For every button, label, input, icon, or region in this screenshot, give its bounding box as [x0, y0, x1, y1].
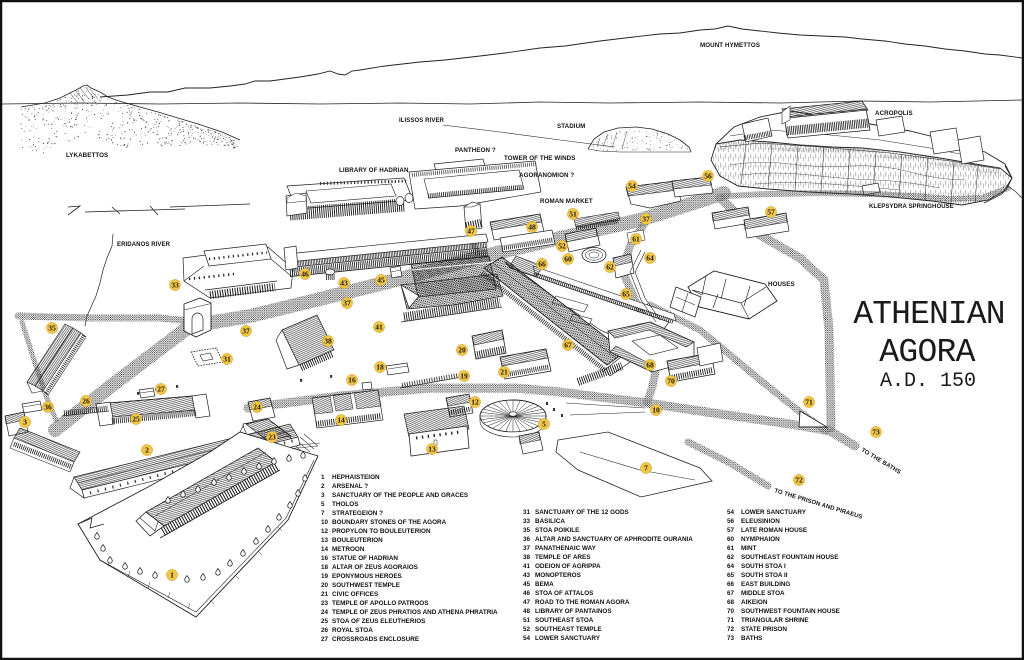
svg-text:68: 68 [646, 361, 654, 370]
svg-text:THOLOS: THOLOS [332, 501, 358, 508]
svg-text:A.D. 150: A.D. 150 [880, 370, 976, 393]
svg-text:46: 46 [523, 590, 531, 597]
svg-text:CIVIC OFFICES: CIVIC OFFICES [332, 591, 378, 598]
svg-text:EAST BUILDING: EAST BUILDING [741, 581, 790, 588]
svg-text:23: 23 [321, 600, 329, 607]
svg-text:31: 31 [223, 355, 231, 364]
svg-text:18: 18 [321, 564, 329, 571]
svg-text:26: 26 [82, 397, 90, 406]
svg-text:STATE PRISON: STATE PRISON [741, 626, 787, 633]
svg-text:13: 13 [428, 445, 436, 454]
svg-text:ODEION OF AGRIPPA: ODEION OF AGRIPPA [535, 563, 601, 570]
svg-text:BEMA: BEMA [535, 581, 554, 588]
svg-text:SOUTHWEST FOUNTAIN HOUSE: SOUTHWEST FOUNTAIN HOUSE [741, 608, 840, 615]
svg-text:7: 7 [644, 464, 648, 473]
svg-text:33: 33 [523, 518, 531, 525]
svg-text:5: 5 [542, 420, 546, 429]
svg-text:38: 38 [324, 337, 332, 346]
svg-text:7: 7 [321, 510, 325, 517]
svg-text:ARSENAL ?: ARSENAL ? [332, 483, 368, 490]
svg-text:41: 41 [375, 323, 383, 332]
svg-text:13: 13 [321, 537, 329, 544]
svg-text:65: 65 [727, 572, 735, 579]
svg-text:64: 64 [646, 254, 654, 263]
svg-text:25: 25 [132, 415, 140, 424]
svg-text:68: 68 [727, 599, 735, 606]
svg-text:MONOPTEROS: MONOPTEROS [535, 572, 581, 579]
svg-text:71: 71 [727, 617, 735, 624]
svg-text:41: 41 [523, 563, 531, 570]
svg-text:12: 12 [321, 528, 329, 535]
svg-text:3: 3 [321, 492, 325, 499]
svg-text:PANATHENAIC WAY: PANATHENAIC WAY [535, 545, 597, 552]
svg-text:66: 66 [727, 581, 735, 588]
svg-text:10: 10 [321, 519, 329, 526]
svg-text:43: 43 [523, 572, 531, 579]
svg-text:SOUTH STOA I: SOUTH STOA I [741, 563, 786, 570]
svg-text:HEPHAISTEION: HEPHAISTEION [332, 474, 380, 481]
svg-text:BASILICA: BASILICA [535, 518, 565, 525]
svg-text:36: 36 [523, 536, 531, 543]
svg-text:ROMAN MARKET: ROMAN MARKET [540, 198, 593, 205]
svg-text:HOUSES: HOUSES [768, 281, 795, 288]
svg-text:45: 45 [523, 581, 531, 588]
svg-text:TOWER OF THE WINDS: TOWER OF THE WINDS [504, 155, 575, 162]
svg-text:52: 52 [558, 242, 566, 251]
svg-text:STATUE OF HADRIAN: STATUE OF HADRIAN [332, 555, 398, 562]
svg-text:61: 61 [632, 235, 640, 244]
svg-text:ALTAR OF ZEUS AGORAIOS: ALTAR OF ZEUS AGORAIOS [332, 564, 418, 571]
svg-text:LOWER SANCTUARY: LOWER SANCTUARY [741, 509, 807, 516]
svg-text:23: 23 [268, 433, 276, 442]
svg-text:ROYAL STOA: ROYAL STOA [332, 627, 373, 634]
svg-text:SANCTUARY OF THE 12 GODS: SANCTUARY OF THE 12 GODS [535, 509, 629, 516]
svg-text:37: 37 [343, 299, 351, 308]
svg-text:54: 54 [628, 182, 636, 191]
svg-text:ALTAR AND SANCTUARY OF APHRODI: ALTAR AND SANCTUARY OF APHRODITE OURANIA [535, 536, 693, 543]
svg-text:48: 48 [528, 223, 536, 232]
svg-text:TEMPLE OF ARES: TEMPLE OF ARES [535, 554, 590, 561]
svg-text:67: 67 [564, 341, 572, 350]
svg-text:52: 52 [523, 626, 531, 633]
svg-text:5: 5 [321, 501, 325, 508]
svg-text:37: 37 [523, 545, 531, 552]
svg-text:25: 25 [321, 618, 329, 625]
svg-text:TEMPLE OF APOLLO PATROOS: TEMPLE OF APOLLO PATROOS [332, 600, 428, 607]
svg-text:57: 57 [727, 527, 735, 534]
svg-text:2: 2 [321, 483, 325, 490]
svg-text:ERIDANOS RIVER: ERIDANOS RIVER [117, 242, 171, 248]
svg-text:LIBRARY OF PANTAINOS: LIBRARY OF PANTAINOS [535, 608, 612, 615]
svg-text:TEMPLE OF ZEUS PHRATIOS AND AT: TEMPLE OF ZEUS PHRATIOS AND ATHENA PHRAT… [332, 609, 498, 616]
svg-text:2: 2 [145, 446, 149, 455]
svg-text:LIBRARY OF HADRIAN: LIBRARY OF HADRIAN [339, 167, 409, 174]
svg-text:24: 24 [253, 403, 261, 412]
svg-text:LOWER SANCTUARY: LOWER SANCTUARY [535, 635, 601, 642]
svg-text:72: 72 [795, 476, 803, 485]
svg-text:60: 60 [727, 536, 735, 543]
svg-text:STOA POIKILE: STOA POIKILE [535, 527, 579, 534]
svg-text:SOUTH STOA II: SOUTH STOA II [741, 572, 788, 579]
svg-text:AIKEION: AIKEION [741, 599, 768, 606]
svg-text:10: 10 [652, 406, 660, 415]
svg-text:73: 73 [872, 428, 880, 437]
svg-text:21: 21 [321, 591, 329, 598]
svg-text:65: 65 [622, 290, 630, 299]
svg-text:48: 48 [523, 608, 531, 615]
svg-text:56: 56 [704, 172, 712, 181]
svg-text:70: 70 [667, 377, 675, 386]
svg-text:14: 14 [337, 416, 345, 425]
svg-text:57: 57 [767, 208, 775, 217]
svg-text:ROAD TO THE ROMAN AGORA: ROAD TO THE ROMAN AGORA [535, 599, 630, 606]
svg-text:20: 20 [321, 582, 329, 589]
svg-text:SANCTUARY OF THE PEOPLE AND GR: SANCTUARY OF THE PEOPLE AND GRACES [332, 492, 468, 499]
svg-text:61: 61 [727, 545, 735, 552]
svg-text:21: 21 [500, 368, 508, 377]
svg-text:31: 31 [523, 509, 531, 516]
svg-text:47: 47 [523, 599, 531, 606]
svg-text:33: 33 [171, 281, 179, 290]
svg-text:STRATEGEION ?: STRATEGEION ? [332, 510, 383, 517]
svg-text:51: 51 [569, 210, 577, 219]
svg-text:MINT: MINT [741, 545, 757, 552]
svg-text:SOUTHEAST FOUNTAIN HOUSE: SOUTHEAST FOUNTAIN HOUSE [741, 554, 839, 561]
svg-text:62: 62 [606, 263, 614, 272]
svg-text:STOA OF ATTALOS: STOA OF ATTALOS [535, 590, 593, 597]
svg-text:38: 38 [523, 554, 531, 561]
svg-text:73: 73 [727, 635, 735, 642]
svg-text:MIDDLE STOA: MIDDLE STOA [741, 590, 785, 597]
svg-text:47: 47 [467, 227, 475, 236]
svg-text:3: 3 [23, 418, 27, 427]
svg-text:60: 60 [564, 255, 572, 264]
svg-text:LYKABETTOS: LYKABETTOS [66, 152, 108, 159]
svg-text:SOUTHWEST TEMPLE: SOUTHWEST TEMPLE [332, 582, 400, 589]
svg-text:72: 72 [727, 626, 735, 633]
svg-text:AGORANOMION ?: AGORANOMION ? [519, 172, 574, 179]
svg-text:CROSSROADS ENCLOSURE: CROSSROADS ENCLOSURE [332, 636, 419, 643]
svg-text:36: 36 [44, 403, 52, 412]
svg-text:PANTHEON ?: PANTHEON ? [455, 147, 496, 154]
svg-text:24: 24 [321, 609, 329, 616]
svg-text:26: 26 [321, 627, 329, 634]
svg-text:67: 67 [727, 590, 735, 597]
svg-text:35: 35 [523, 527, 531, 534]
svg-text:27: 27 [157, 385, 165, 394]
svg-text:NYMPHAION: NYMPHAION [741, 536, 780, 543]
svg-text:STOA OF ZEUS ELEUTHERIOS: STOA OF ZEUS ELEUTHERIOS [332, 618, 425, 625]
svg-text:AGORA: AGORA [879, 334, 975, 371]
svg-text:BOULEUTERION: BOULEUTERION [332, 537, 383, 544]
svg-text:KLEPSYDRA SPRINGHOUSE: KLEPSYDRA SPRINGHOUSE [869, 204, 954, 210]
svg-text:ILISSOS RIVER: ILISSOS RIVER [399, 118, 445, 124]
svg-text:METROON: METROON [332, 546, 365, 553]
svg-text:BOUNDARY STONES OF THE AGORA: BOUNDARY STONES OF THE AGORA [332, 519, 447, 526]
svg-text:51: 51 [523, 617, 531, 624]
svg-text:EPONYMOUS HEROES: EPONYMOUS HEROES [332, 573, 402, 580]
svg-text:18: 18 [376, 363, 384, 372]
svg-text:ELEUSINION: ELEUSINION [741, 518, 780, 525]
svg-text:54: 54 [523, 635, 531, 642]
svg-text:54: 54 [727, 509, 735, 516]
svg-text:35: 35 [48, 324, 56, 333]
svg-text:45: 45 [377, 276, 385, 285]
svg-text:37: 37 [642, 215, 650, 224]
svg-text:70: 70 [727, 608, 735, 615]
svg-text:19: 19 [460, 372, 468, 381]
svg-text:ATHENIAN: ATHENIAN [853, 296, 1004, 333]
svg-text:BATHS: BATHS [741, 635, 762, 642]
svg-text:16: 16 [321, 555, 329, 562]
svg-text:1: 1 [170, 571, 174, 580]
svg-text:14: 14 [321, 546, 329, 553]
svg-text:19: 19 [321, 573, 329, 580]
svg-text:ACROPOLIS: ACROPOLIS [875, 110, 913, 117]
svg-text:STADIUM: STADIUM [557, 123, 585, 130]
svg-text:SOUTHEAST STOA: SOUTHEAST STOA [535, 617, 594, 624]
svg-text:PROPYLON TO BOULEUTERION: PROPYLON TO BOULEUTERION [332, 528, 431, 535]
svg-text:37: 37 [242, 327, 250, 336]
svg-text:20: 20 [458, 346, 466, 355]
svg-text:TRIANGULAR SHRINE: TRIANGULAR SHRINE [741, 617, 809, 624]
svg-text:64: 64 [727, 563, 735, 570]
svg-text:16: 16 [348, 376, 356, 385]
svg-text:66: 66 [538, 260, 546, 269]
svg-text:27: 27 [321, 636, 329, 643]
svg-text:71: 71 [805, 398, 813, 407]
svg-text:SOUTHEAST TEMPLE: SOUTHEAST TEMPLE [535, 626, 602, 633]
svg-text:62: 62 [727, 554, 735, 561]
svg-text:12: 12 [471, 398, 479, 407]
svg-text:46: 46 [301, 270, 309, 279]
svg-text:43: 43 [340, 279, 348, 288]
svg-text:56: 56 [727, 518, 735, 525]
svg-text:LATE ROMAN HOUSE: LATE ROMAN HOUSE [741, 527, 807, 534]
svg-text:MOUNT HYMETTOS: MOUNT HYMETTOS [700, 42, 760, 49]
svg-text:1: 1 [321, 474, 325, 481]
